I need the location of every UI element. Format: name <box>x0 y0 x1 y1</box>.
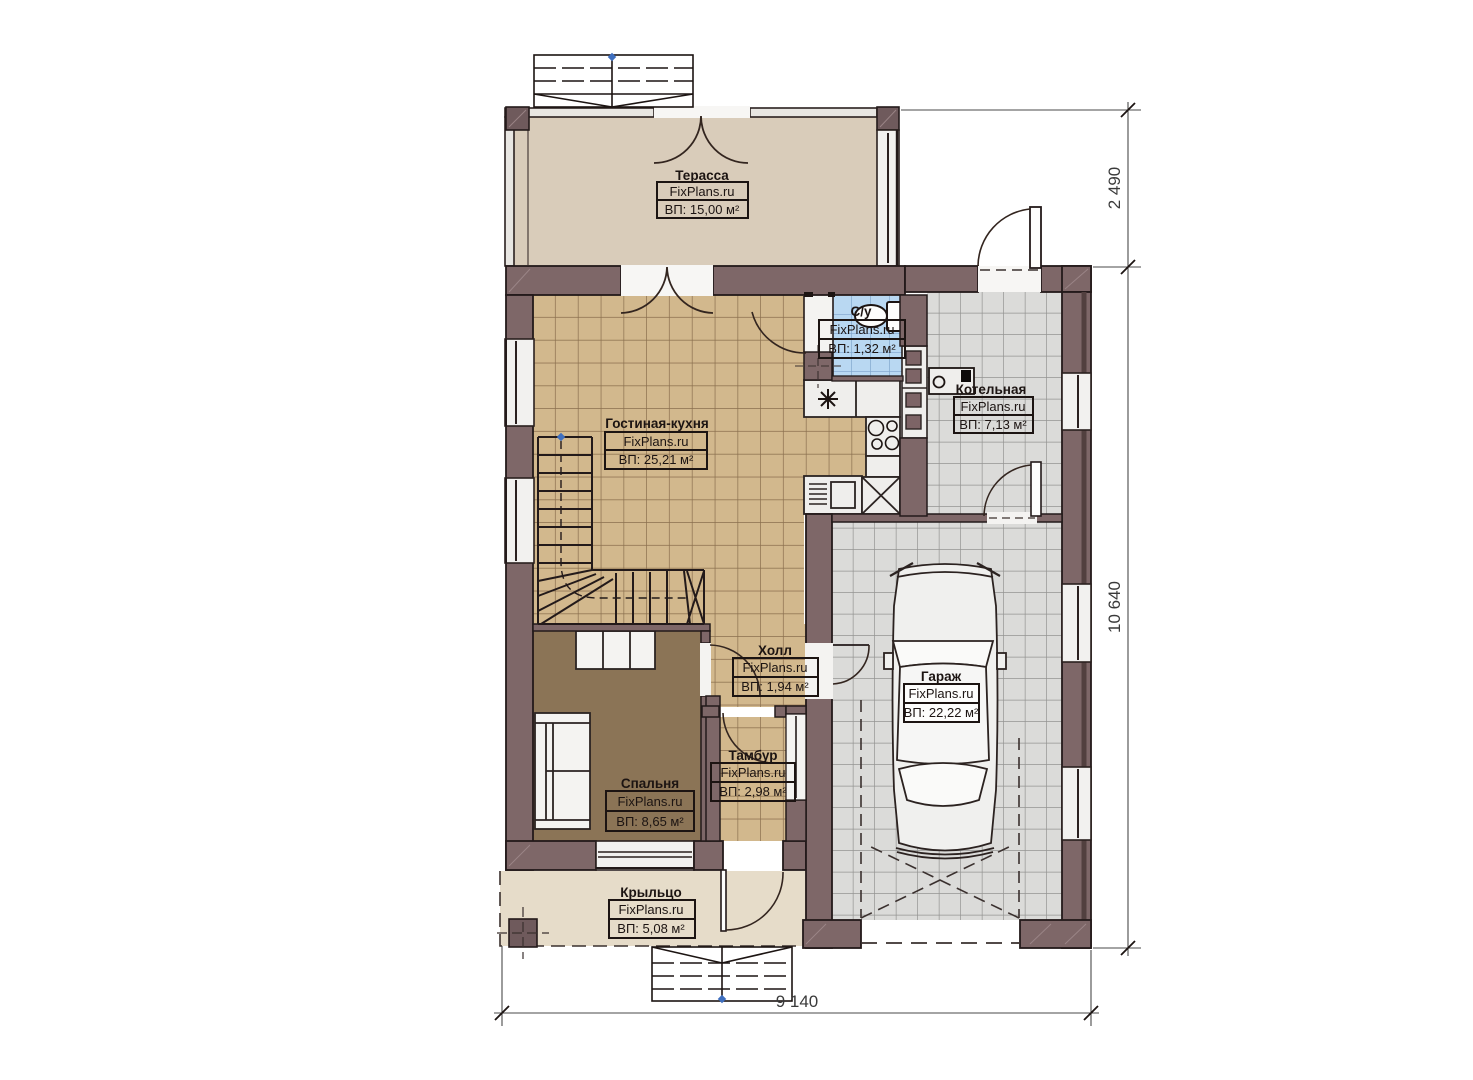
svg-text:FixPlans.ru: FixPlans.ru <box>742 660 807 675</box>
svg-text:ВП: 7,13 м²: ВП: 7,13 м² <box>959 417 1027 432</box>
svg-text:ВП: 1,94 м²: ВП: 1,94 м² <box>741 679 809 694</box>
svg-text:10 640: 10 640 <box>1105 581 1124 633</box>
svg-text:Крыльцо: Крыльцо <box>620 885 681 900</box>
svg-text:Гараж: Гараж <box>921 669 962 684</box>
svg-text:FixPlans.ru: FixPlans.ru <box>829 322 894 337</box>
svg-text:ВП: 8,65 м²: ВП: 8,65 м² <box>616 814 684 829</box>
svg-text:ВП: 1,32 м²: ВП: 1,32 м² <box>828 341 896 356</box>
svg-text:FixPlans.ru: FixPlans.ru <box>960 399 1025 414</box>
svg-text:Терасса: Терасса <box>675 168 729 183</box>
svg-text:FixPlans.ru: FixPlans.ru <box>623 434 688 449</box>
svg-text:FixPlans.ru: FixPlans.ru <box>618 902 683 917</box>
svg-text:FixPlans.ru: FixPlans.ru <box>669 184 734 199</box>
svg-text:9 140: 9 140 <box>776 992 819 1011</box>
svg-text:ВП: 2,98 м²: ВП: 2,98 м² <box>719 784 787 799</box>
svg-text:2 490: 2 490 <box>1105 167 1124 210</box>
svg-text:Холл: Холл <box>758 643 792 658</box>
svg-text:ВП: 25,21 м²: ВП: 25,21 м² <box>619 452 694 467</box>
svg-text:Гостиная-кухня: Гостиная-кухня <box>605 416 708 431</box>
svg-text:ВП: 5,08 м²: ВП: 5,08 м² <box>617 921 685 936</box>
svg-text:FixPlans.ru: FixPlans.ru <box>720 765 785 780</box>
svg-text:Тамбур: Тамбур <box>729 748 778 763</box>
svg-text:Спальня: Спальня <box>621 776 679 791</box>
svg-text:Котельная: Котельная <box>956 382 1027 397</box>
svg-text:FixPlans.ru: FixPlans.ru <box>908 686 973 701</box>
svg-text:ВП: 22,22 м²: ВП: 22,22 м² <box>904 705 979 720</box>
svg-text:С/у: С/у <box>850 304 872 319</box>
svg-text:FixPlans.ru: FixPlans.ru <box>617 794 682 809</box>
svg-text:ВП: 15,00 м²: ВП: 15,00 м² <box>665 202 740 217</box>
